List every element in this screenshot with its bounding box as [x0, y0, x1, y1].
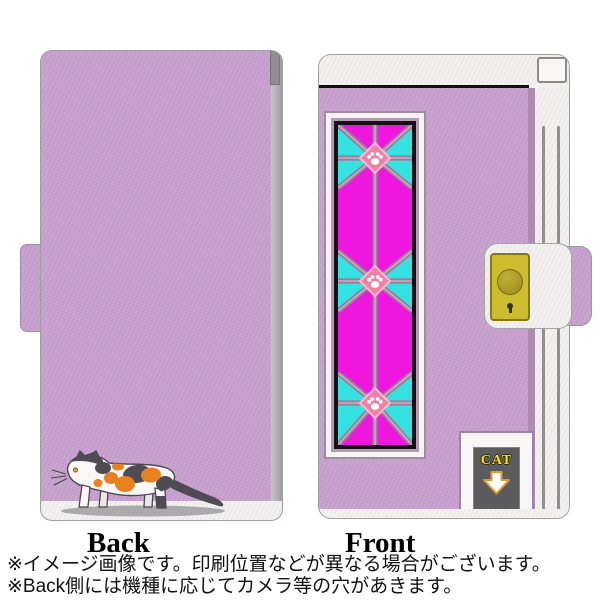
front-top-band — [319, 55, 570, 85]
cat-eye — [73, 468, 77, 472]
cat-door-frame: CAT — [459, 431, 534, 509]
stained-glass-window — [324, 111, 426, 459]
clasp-strap-tab — [484, 243, 572, 329]
corner-accent-window — [537, 57, 567, 83]
product-photo-stage: CAT Back Front ※イメージ画像です。印刷位置などが異なる場合がござ… — [0, 0, 600, 600]
keyhole-stem — [509, 307, 512, 313]
stained-glass-pattern — [338, 125, 412, 445]
magnetic-clasp-strap — [484, 243, 594, 329]
cat-door-plate: CAT — [473, 447, 520, 511]
clasp-button — [497, 269, 523, 295]
back-clasp-tab — [20, 244, 42, 332]
cat-door-label: CAT — [474, 453, 519, 469]
cat-dark-hind-paw — [156, 496, 166, 508]
cat-tail — [169, 477, 223, 506]
back-edge-strip — [271, 51, 282, 520]
clasp-button-plate — [490, 253, 530, 321]
cat-whiskers — [51, 470, 67, 485]
down-arrow-icon — [483, 471, 510, 495]
back-cover — [40, 50, 283, 521]
disclaimer-line-1: ※イメージ画像です。印刷位置などが異なる場合がございます。 — [7, 554, 551, 575]
front-bottom-band — [319, 509, 570, 519]
back-hinge-notch — [270, 51, 280, 85]
disclaimer-line-2: ※Back側には機種に応じてカメラ等の穴があきます。 — [7, 576, 462, 597]
calico-cat-illustration — [51, 444, 226, 519]
